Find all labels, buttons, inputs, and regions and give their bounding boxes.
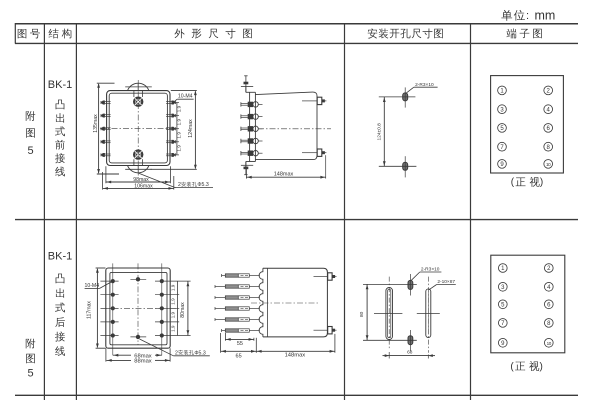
svg-text:148max: 148max xyxy=(285,353,306,359)
svg-text:2: 2 xyxy=(547,89,551,95)
svg-text:10-M4: 10-M4 xyxy=(84,283,99,289)
svg-text:124±0.8: 124±0.8 xyxy=(376,123,382,141)
svg-text:88max: 88max xyxy=(134,359,152,365)
svg-text:10-M4: 10-M4 xyxy=(178,94,193,100)
svg-text:1.9: 1.9 xyxy=(177,119,182,126)
svg-text:BK-1: BK-1 xyxy=(48,251,72,263)
svg-text:80: 80 xyxy=(359,311,365,317)
svg-text:mm: mm xyxy=(535,9,556,23)
svg-text:9: 9 xyxy=(500,162,504,168)
svg-text:117max: 117max xyxy=(86,301,92,319)
svg-text:2: 2 xyxy=(547,266,551,272)
svg-text:6: 6 xyxy=(547,302,551,308)
svg-text:9: 9 xyxy=(501,341,505,347)
svg-text:4: 4 xyxy=(547,107,551,113)
svg-text:1: 1 xyxy=(501,266,505,272)
svg-text:(: ( xyxy=(510,361,514,372)
svg-text:135max: 135max xyxy=(93,114,99,133)
svg-text:(: ( xyxy=(511,177,515,188)
svg-text:1.9: 1.9 xyxy=(177,132,182,139)
svg-text:1.9: 1.9 xyxy=(177,105,182,112)
svg-text:1.9: 1.9 xyxy=(171,284,176,291)
svg-text:3: 3 xyxy=(501,285,505,291)
svg-text:10: 10 xyxy=(547,341,552,346)
svg-text:5: 5 xyxy=(27,145,33,157)
svg-text:1: 1 xyxy=(500,89,504,95)
svg-text:106max: 106max xyxy=(134,184,153,190)
svg-text:10: 10 xyxy=(546,162,551,167)
svg-text:BK-1: BK-1 xyxy=(48,79,72,91)
svg-text:): ) xyxy=(540,177,543,188)
svg-text:5: 5 xyxy=(27,368,33,380)
svg-text:3: 3 xyxy=(500,107,504,113)
svg-text::: : xyxy=(526,10,529,22)
svg-text:148max: 148max xyxy=(274,172,294,178)
svg-text:1.9: 1.9 xyxy=(171,298,176,305)
svg-text:68: 68 xyxy=(407,350,413,356)
svg-text:7: 7 xyxy=(500,145,504,151)
svg-text:7: 7 xyxy=(501,321,505,327)
svg-text:6: 6 xyxy=(547,126,551,132)
svg-text:4: 4 xyxy=(547,285,551,291)
svg-text:98max: 98max xyxy=(133,177,149,183)
svg-text:8: 8 xyxy=(547,321,551,327)
svg-text:1.9: 1.9 xyxy=(177,145,182,152)
svg-text:8: 8 xyxy=(547,145,551,151)
svg-text:124max: 124max xyxy=(188,119,194,138)
svg-text:1.9: 1.9 xyxy=(171,325,176,332)
svg-text:80max: 80max xyxy=(180,302,186,318)
svg-text:65: 65 xyxy=(236,354,242,360)
svg-text:5: 5 xyxy=(501,302,505,308)
svg-text:1.9: 1.9 xyxy=(171,311,176,318)
svg-text:5: 5 xyxy=(500,126,504,132)
svg-text:): ) xyxy=(540,361,543,372)
svg-text:55: 55 xyxy=(237,341,243,347)
